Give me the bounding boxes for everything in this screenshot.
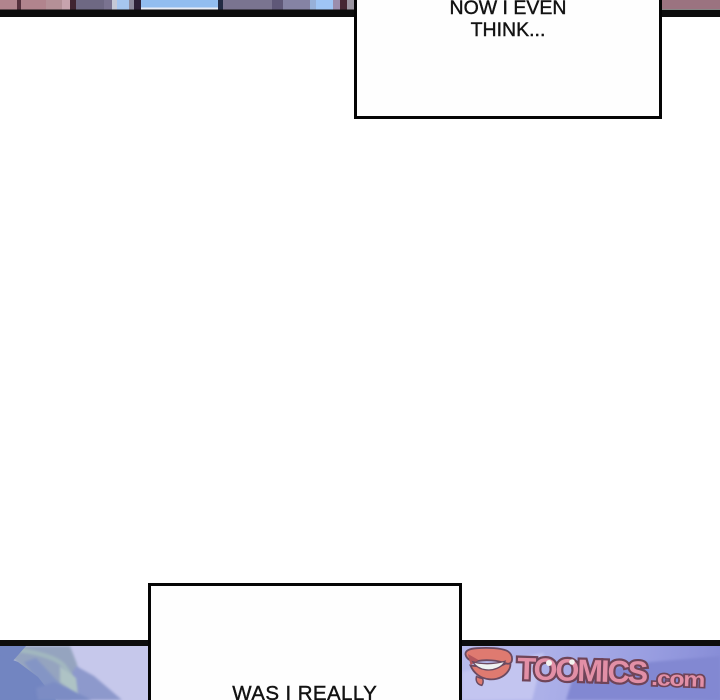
svg-text:.com: .com bbox=[651, 667, 705, 692]
svg-text:TOOMICS: TOOMICS bbox=[517, 651, 648, 690]
